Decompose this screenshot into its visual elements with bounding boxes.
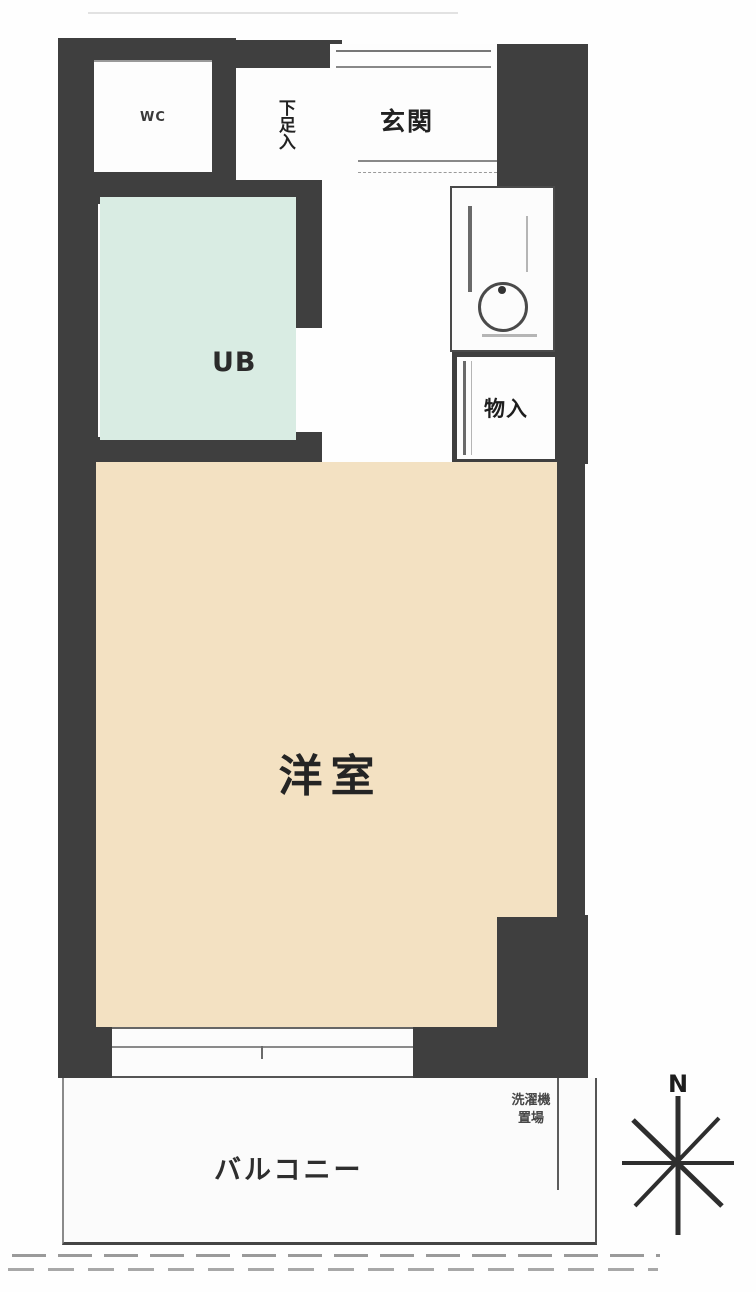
room-wc-label: WC: [140, 110, 166, 125]
room-western-main: [96, 462, 557, 917]
floor-plan: WC 下足入 玄関 物入 UB 洋室 バルコニー: [0, 0, 756, 1292]
storage-door-line2: [471, 361, 472, 455]
entrance-step-line: [358, 160, 497, 173]
kitchen-divider-line: [468, 206, 472, 292]
wall-entry-right-block: [497, 44, 588, 190]
room-storage: 物入: [452, 352, 560, 464]
kitchen-edge-line: [526, 216, 528, 272]
kitchen-squiggle-line: [482, 334, 537, 337]
wall-bottom-mid-right: [413, 1025, 588, 1078]
balcony-window: [112, 1027, 413, 1078]
balcony: バルコニー 洗濯機 置場: [62, 1078, 597, 1245]
compass-icon: N: [608, 1072, 748, 1242]
room-storage-label: 物入: [484, 393, 528, 423]
wall-ub-right-upper: [294, 168, 322, 328]
room-entrance: 玄関: [330, 44, 497, 190]
room-shoe-storage-label: 下足入: [275, 99, 293, 150]
sink-faucet-dot: [498, 286, 506, 294]
bottom-broken-line-1: [12, 1254, 660, 1257]
compass-north-label: N: [668, 1072, 688, 1098]
room-western-lower: [96, 915, 497, 1027]
room-entrance-label: 玄関: [380, 102, 434, 138]
storage-door-line: [463, 361, 466, 455]
bottom-broken-line-2: [8, 1268, 658, 1271]
balcony-label: バルコニー: [214, 1148, 363, 1187]
wall-bottom-left: [58, 1025, 112, 1078]
window-center-tick: [261, 1046, 263, 1059]
room-unit-bath-label: UB: [212, 347, 257, 378]
wall-right-kitchen: [553, 186, 588, 354]
room-western-label: 洋室: [238, 740, 423, 804]
kitchen-counter: [450, 186, 555, 352]
room-shoe-storage: 下足入: [236, 68, 332, 180]
room-unit-bath: UB: [100, 197, 296, 440]
washing-area-divider-line: [557, 1078, 559, 1190]
wall-ub-bottom: [58, 437, 322, 465]
wall-right-storage: [557, 352, 588, 464]
wall-right-western-room: [557, 464, 585, 919]
scan-artifact-line: [88, 12, 458, 14]
room-wc: WC: [94, 60, 212, 172]
entrance-door-line: [336, 50, 491, 68]
wall-top-above-shoe-storage: [210, 40, 342, 68]
